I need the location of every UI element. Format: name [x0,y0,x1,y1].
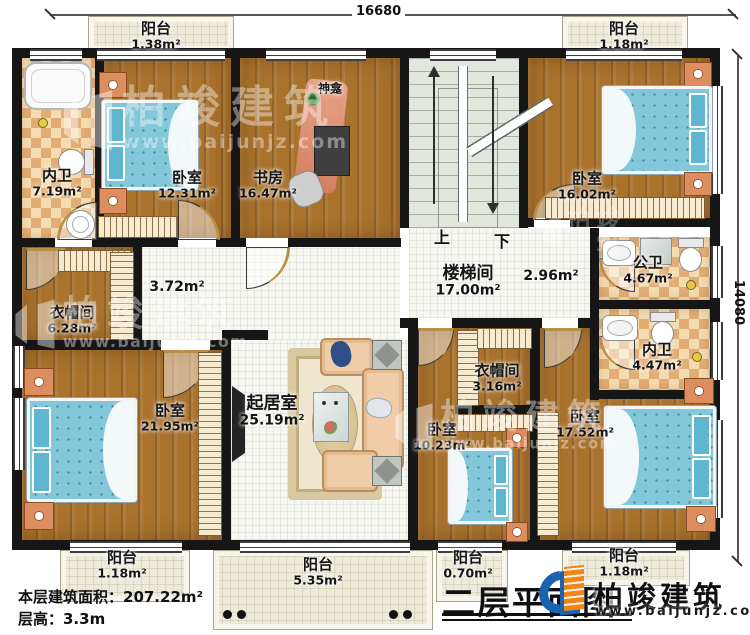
nightstand [24,502,54,530]
wall [590,228,599,400]
arrowhead-up-icon [428,66,440,77]
area-label-hall-right: 2.96m² [523,269,578,285]
window [266,49,366,61]
window [13,398,25,470]
wardrobe [98,216,178,238]
arrowhead-down-icon [487,203,499,214]
room-label-bedroom-top-left: 卧室12.31m² [158,170,216,201]
room-label-cloakroom-center: 衣帽间3.16m² [472,363,521,394]
room-label-balcony-bottom-left: 阳台1.18m² [97,550,146,581]
side-table [372,340,402,370]
room-label-balcony-bottom-center: 阳台5.35m² [293,557,342,588]
window [711,322,723,380]
fixture-knob [38,118,48,128]
stairs-down-label: 下 [494,228,510,252]
nightstand [684,62,712,86]
window [711,86,723,194]
balcony-column [403,610,412,619]
wall [570,218,710,227]
title-underline [442,619,632,621]
wall [595,300,710,309]
bed [448,448,512,524]
nightstand [684,378,714,404]
stair-arrow-down [492,76,494,204]
bathtub [24,62,92,110]
wardrobe [477,328,532,349]
area-label-hall-left: 3.72m² [149,280,204,296]
room-label-bath-public: 公卫4.67m² [623,255,672,286]
window [30,49,82,61]
outer-wall-left [12,48,22,550]
room-label-bedroom-bottom-center: 卧室10.23m² [413,422,471,453]
coffee-table [313,392,349,442]
room-label-study: 书房16.47m² [239,170,297,201]
wardrobe [198,352,222,536]
wall [231,58,240,238]
room-label-bedroom-bottom-right: 卧室17.52m² [556,409,614,440]
balcony-column [223,610,232,619]
fixture-knob [692,352,702,362]
wall [519,58,528,228]
room-label-balcony-bottom-small: 阳台0.70m² [443,550,492,581]
floor-area-text: 本层建筑面积：207.22m² [18,586,203,607]
sink [602,315,638,341]
window [711,246,723,298]
wall [133,238,142,350]
nightstand [506,522,528,542]
nightstand [24,368,54,396]
room-label-balcony-top-right: 阳台1.18m² [599,21,648,52]
side-table [372,456,402,486]
window [430,49,496,61]
bed [604,406,716,508]
floor-height-text: 层高：3.3m [18,608,105,629]
wall [216,238,246,247]
room-label-cloakroom-left: 衣帽间6.28m² [47,305,96,336]
nightstand [506,428,528,448]
stairs-up-label: 上 [434,224,450,248]
desk [314,126,350,176]
stair-arrow-up [433,76,435,204]
wall [452,318,542,328]
brand-logo-icon [540,566,588,616]
sink [66,210,95,239]
room-label-bath-top-left: 内卫7.19m² [32,168,81,199]
wall [210,340,222,350]
nightstand [684,172,712,196]
sofa [322,450,378,492]
bed [27,398,137,502]
fixture-knob [686,280,696,290]
wall [92,238,178,247]
balcony-column [237,610,246,619]
sliding-door-living [240,541,410,553]
wall [288,238,401,247]
room-label-bedroom-top-right: 卧室16.02m² [558,171,616,202]
brand-url: www.baijunjz.com [595,604,750,619]
wall [578,318,595,328]
balcony-column [389,610,398,619]
top-dimension-value: 16680 [352,4,405,19]
plan-title: 二层平面图 [442,576,617,624]
wardrobe [110,252,134,340]
room-label-stair-hall: 楼梯间17.00m² [435,265,500,300]
wall [455,405,539,414]
nightstand [99,72,127,98]
nightstand [99,188,127,214]
wall [222,330,231,540]
room-label-bedroom-bottom-left: 卧室21.95m² [141,403,199,434]
toilet [676,238,704,272]
wall [21,340,161,350]
room-label-bath-right: 内卫4.47m² [632,342,681,373]
floor-plan-page: 16680 14080 [0,0,750,635]
room-label-living: 起居室25.19m² [239,395,304,430]
wall [21,238,55,247]
wall [222,330,268,340]
room-label-balcony-top-left: 阳台1.38m² [131,21,180,52]
right-dimension-value: 14080 [731,276,746,329]
room-label-shrine: 神龛 [318,82,342,95]
wall [400,58,409,228]
bed [602,86,712,174]
nightstand [686,506,716,532]
wall [400,318,418,328]
